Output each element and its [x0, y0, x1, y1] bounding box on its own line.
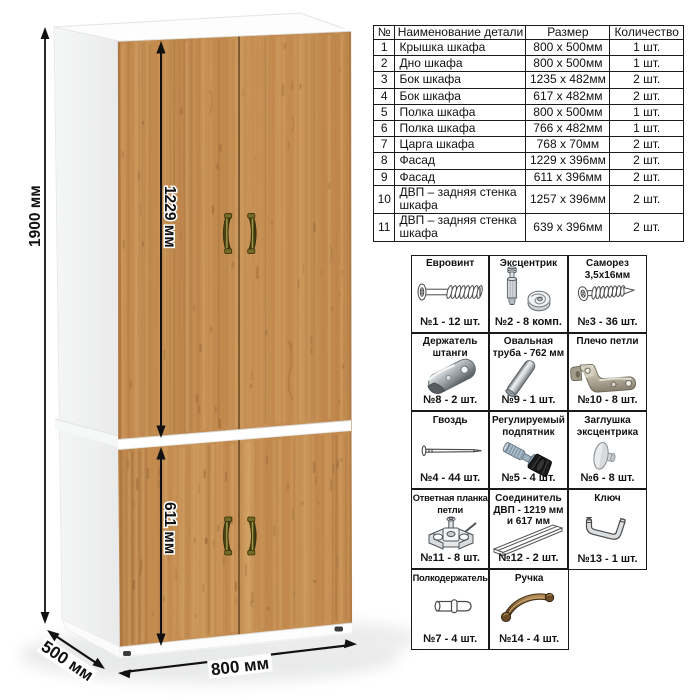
svg-text:1900 мм: 1900 мм	[27, 185, 44, 247]
svg-text:611 мм: 611 мм	[161, 502, 178, 554]
svg-text:1229 мм: 1229 мм	[161, 186, 178, 248]
